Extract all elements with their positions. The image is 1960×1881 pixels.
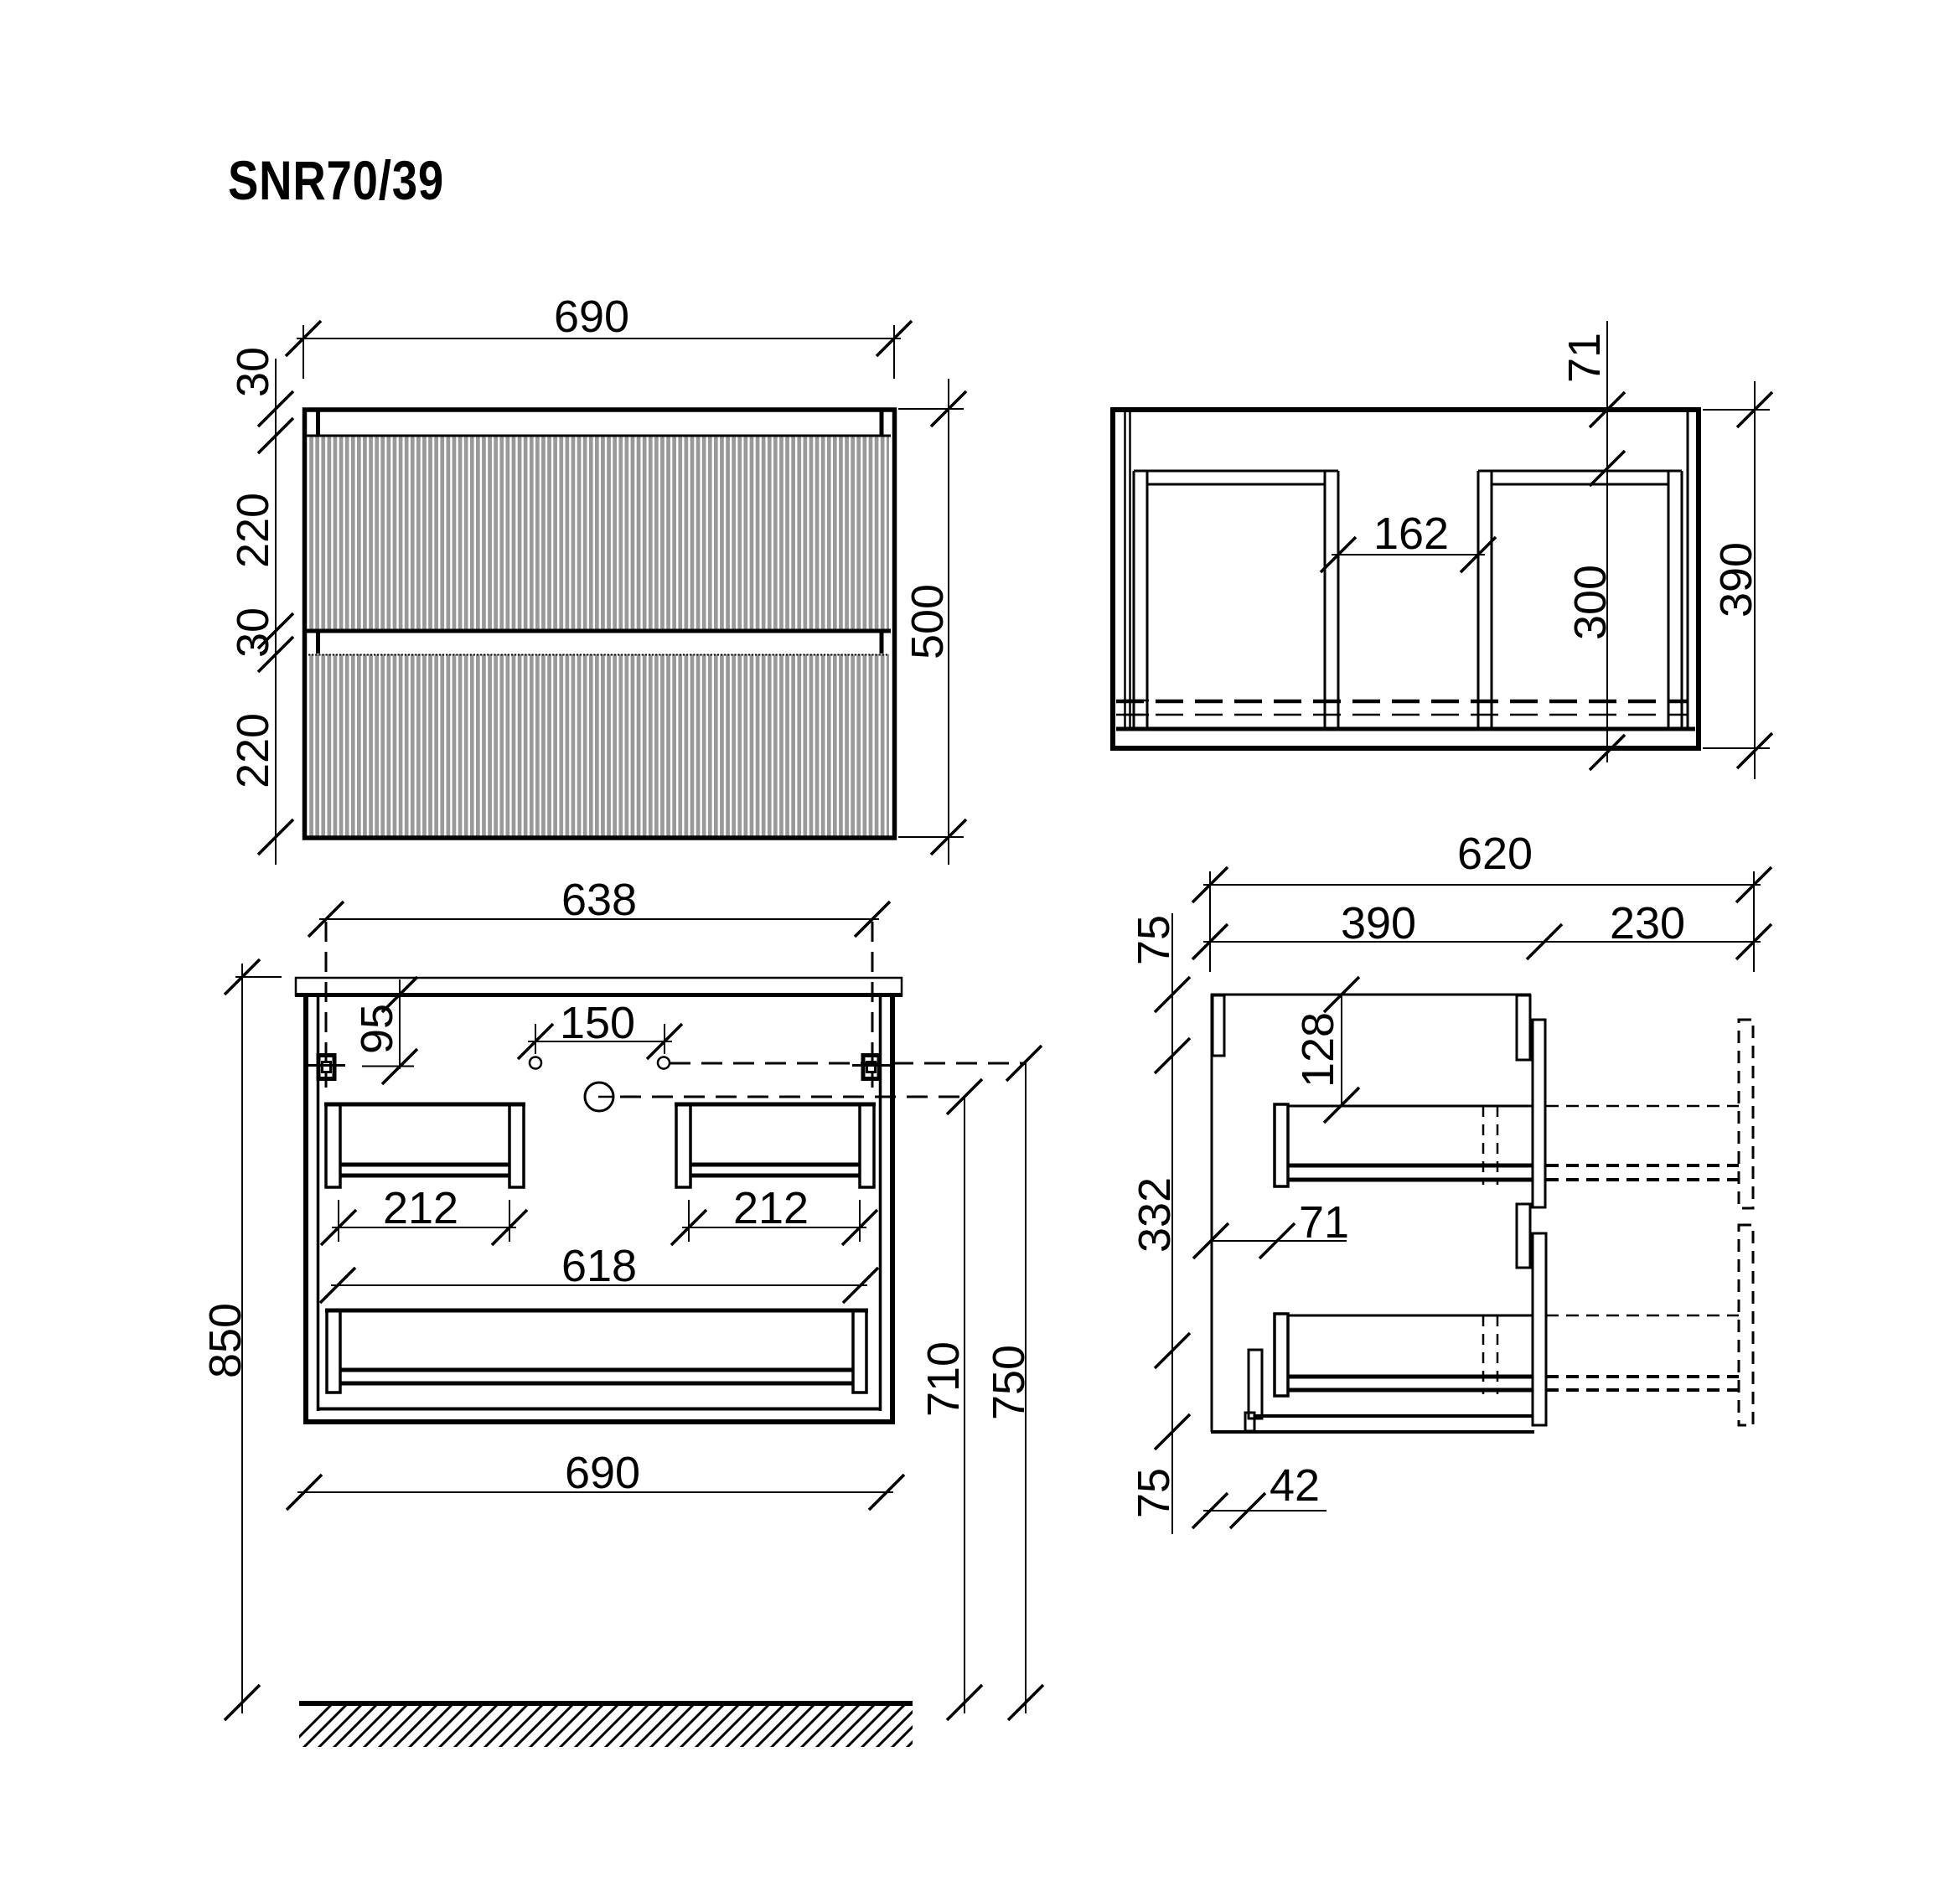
svg-text:220: 220: [228, 493, 278, 568]
svg-text:212: 212: [383, 1183, 458, 1233]
svg-text:71: 71: [1299, 1197, 1349, 1248]
svg-text:390: 390: [1711, 542, 1761, 618]
svg-text:42: 42: [1270, 1460, 1320, 1511]
svg-text:SNR70/39: SNR70/39: [228, 149, 444, 211]
svg-text:71: 71: [1559, 333, 1610, 383]
svg-text:332: 332: [1130, 1177, 1180, 1253]
svg-text:690: 690: [565, 1448, 640, 1498]
svg-text:162: 162: [1373, 509, 1449, 559]
svg-text:690: 690: [554, 292, 629, 342]
svg-text:620: 620: [1457, 829, 1533, 879]
svg-text:75: 75: [1129, 915, 1179, 965]
svg-text:75: 75: [1129, 1468, 1179, 1518]
svg-text:212: 212: [733, 1183, 809, 1233]
svg-text:710: 710: [918, 1341, 969, 1417]
svg-text:95: 95: [352, 1004, 402, 1054]
svg-text:638: 638: [561, 875, 637, 925]
svg-text:30: 30: [228, 347, 278, 397]
svg-text:300: 300: [1565, 565, 1616, 640]
svg-text:230: 230: [1610, 898, 1685, 948]
svg-text:750: 750: [984, 1345, 1034, 1420]
svg-text:850: 850: [200, 1303, 251, 1378]
svg-text:618: 618: [561, 1241, 637, 1291]
svg-text:150: 150: [560, 998, 635, 1048]
svg-text:390: 390: [1341, 898, 1416, 948]
svg-text:30: 30: [228, 607, 278, 658]
svg-text:220: 220: [228, 713, 278, 788]
svg-text:500: 500: [902, 584, 953, 659]
svg-text:128: 128: [1293, 1012, 1343, 1088]
